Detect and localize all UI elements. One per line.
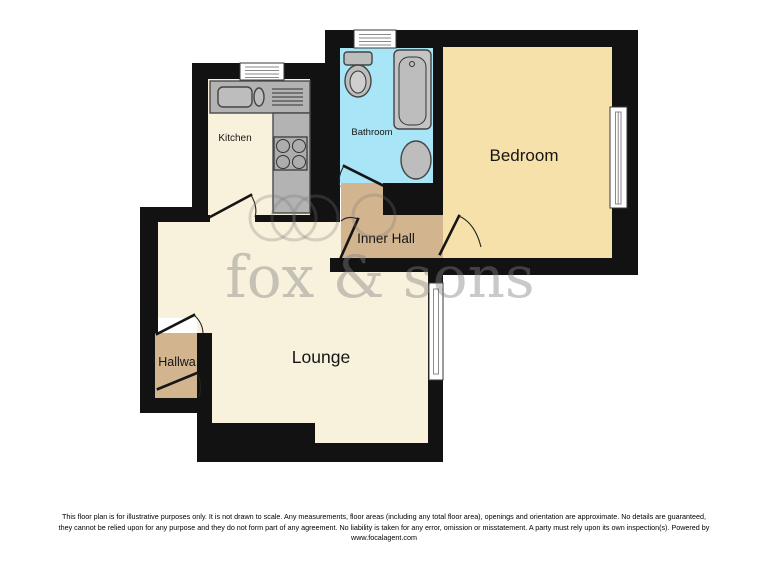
basin-icon: [401, 141, 431, 179]
kitchen-window: [240, 63, 284, 80]
floorplan-drawing: Kitchen Bathroom Bedroom Inner Hall Loun…: [0, 0, 768, 560]
disclaimer-line-2: they cannot be relied upon for any purpo…: [0, 523, 768, 534]
wall: [315, 443, 443, 462]
wall: [325, 30, 340, 215]
toilet-icon: [344, 52, 372, 97]
room-label-hallway: Hallwa: [158, 355, 196, 369]
disclaimer-line-3: www.focalagent.com: [0, 533, 768, 544]
watermark-text: fox & sons: [225, 243, 534, 311]
disclaimer-line-1: This floor plan is for illustrative purp…: [0, 512, 768, 523]
hob-icon: [274, 137, 307, 170]
room-label-bedroom: Bedroom: [490, 146, 559, 165]
wall: [197, 423, 330, 462]
wall: [192, 63, 208, 207]
room-label-bathroom: Bathroom: [351, 127, 392, 138]
bedroom-window: [610, 107, 627, 208]
room-label-lounge: Lounge: [292, 347, 350, 367]
wall: [430, 30, 638, 47]
bathroom-window: [354, 30, 396, 48]
disclaimer: This floor plan is for illustrative purp…: [0, 512, 768, 544]
bathtub-icon: [394, 50, 431, 129]
floorplan-page: Kitchen Bathroom Bedroom Inner Hall Loun…: [0, 0, 768, 576]
wall: [383, 183, 445, 215]
room-label-kitchen: Kitchen: [218, 133, 251, 144]
